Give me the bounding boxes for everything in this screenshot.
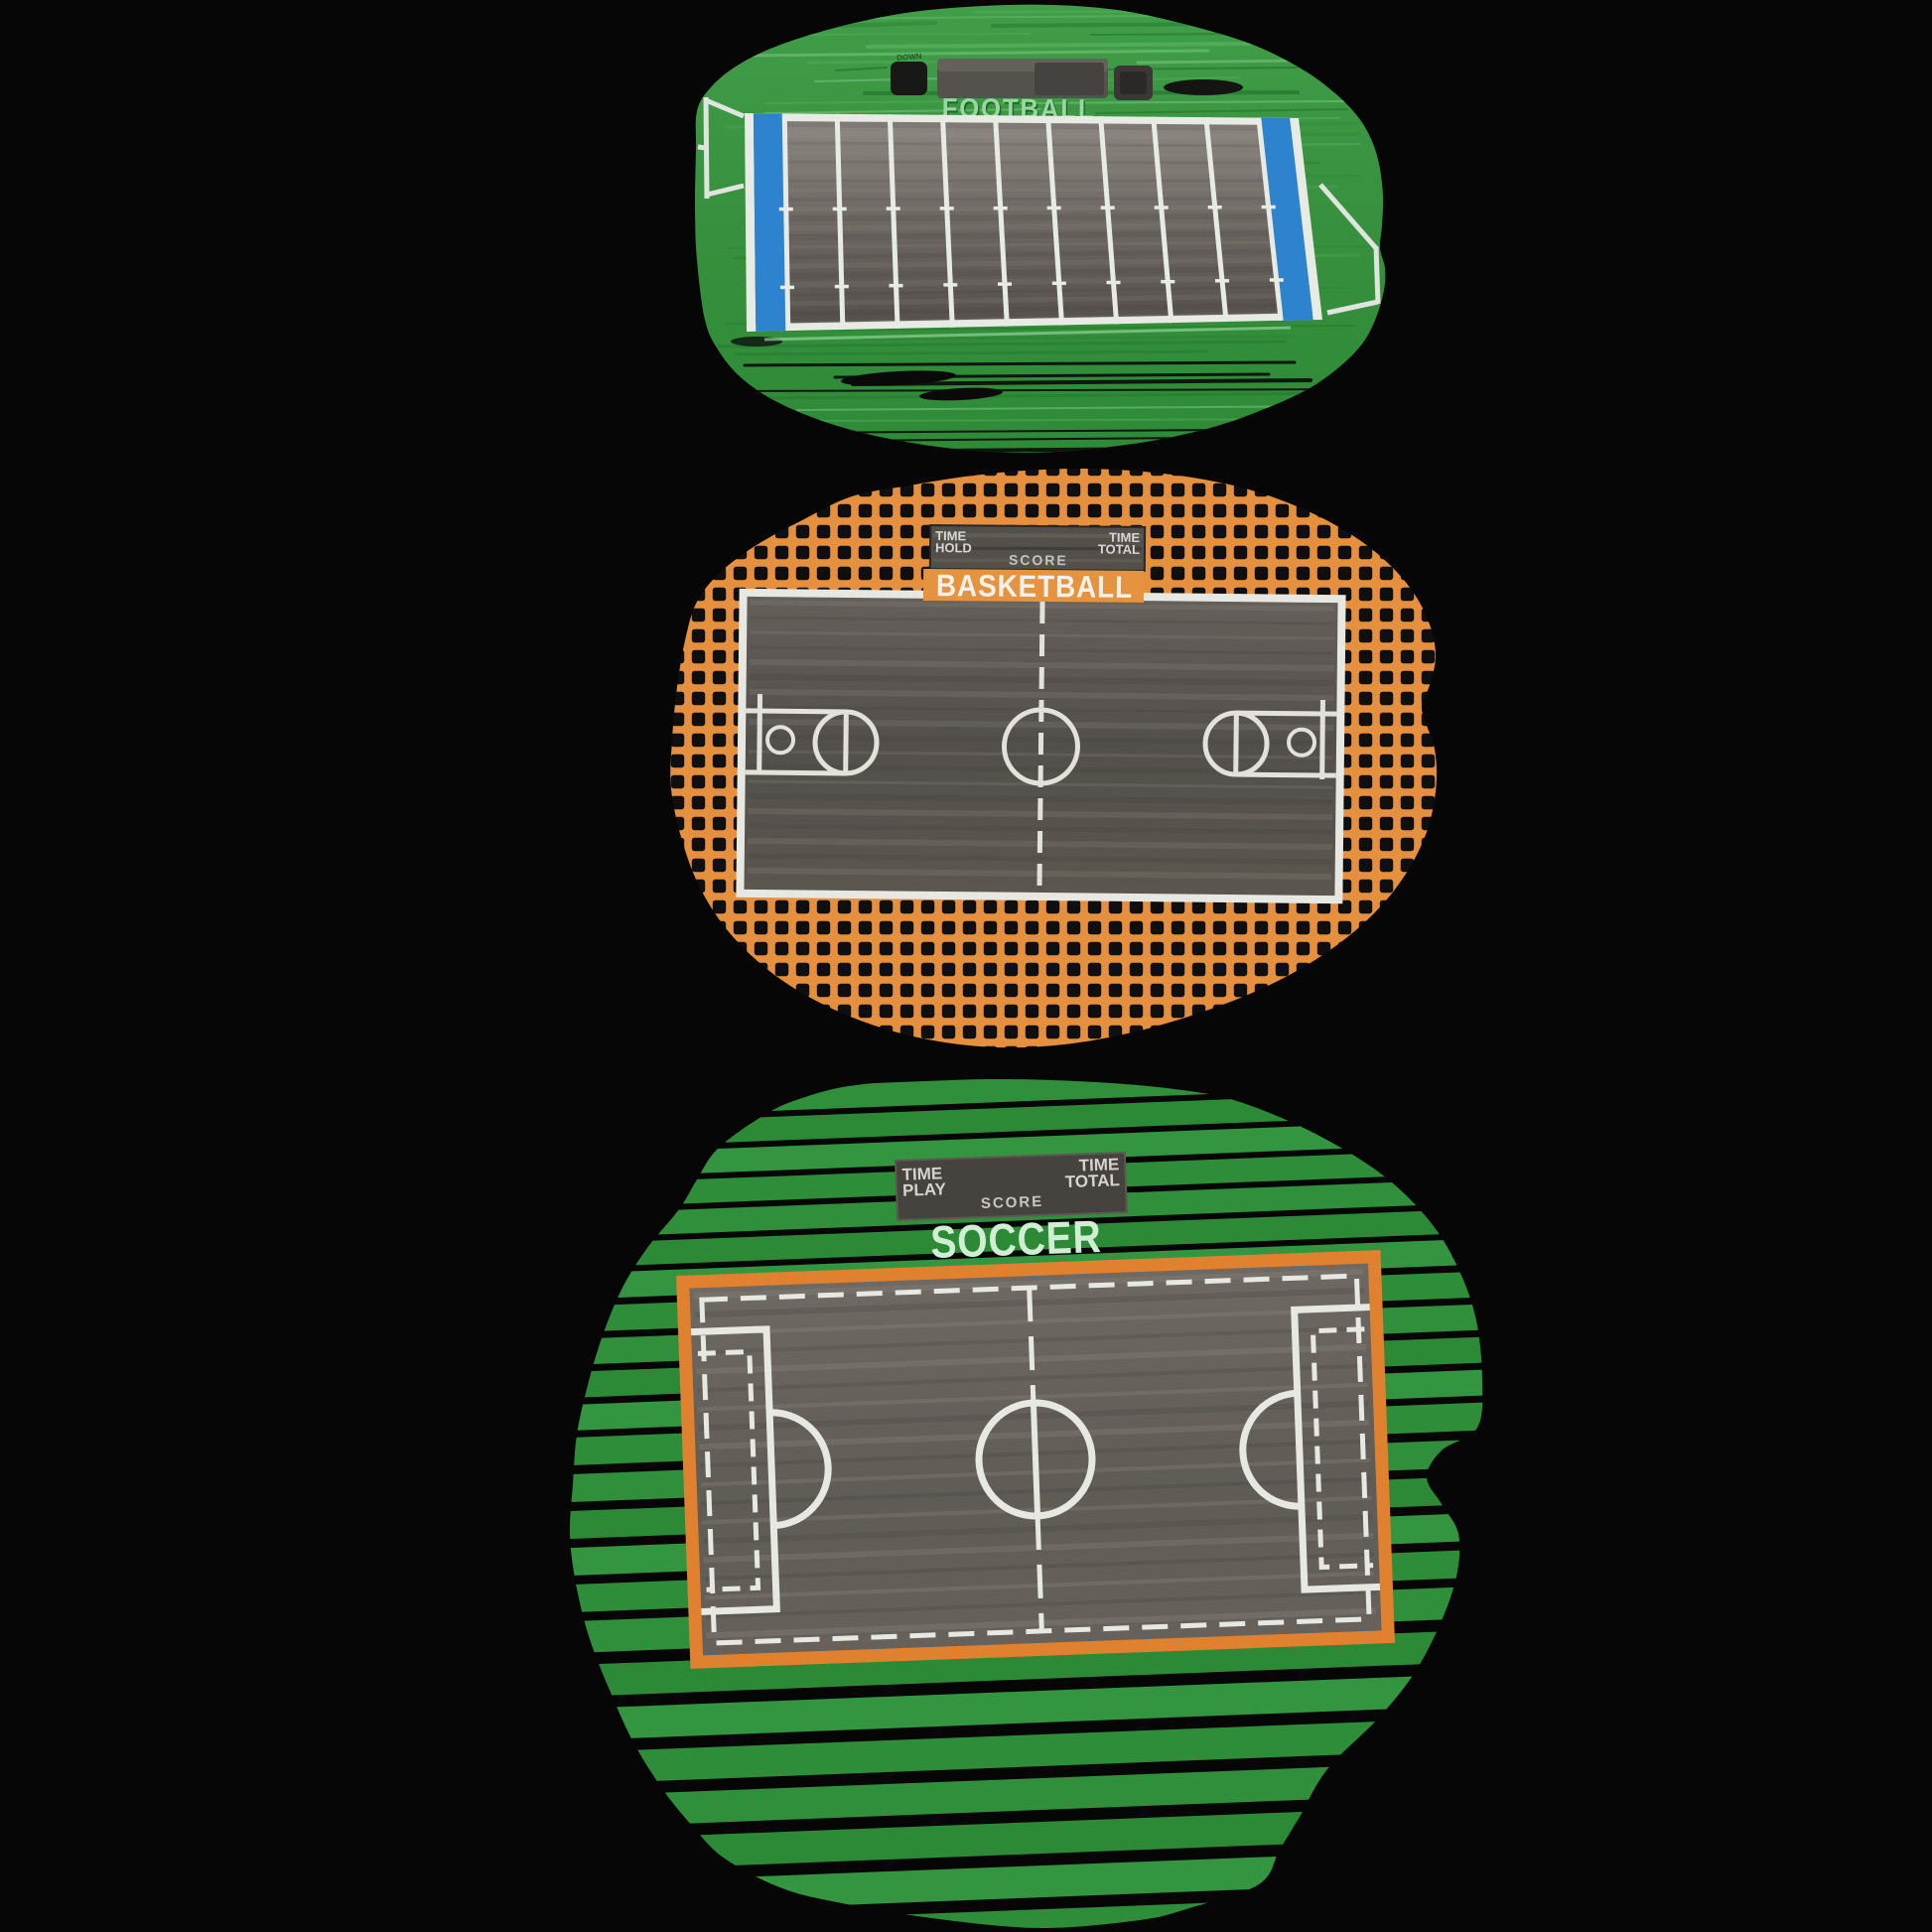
svg-text:TOTAL: TOTAL xyxy=(1098,542,1140,557)
svg-text:TOTAL: TOTAL xyxy=(1064,1171,1120,1191)
svg-text:DOWN: DOWN xyxy=(897,52,922,63)
svg-text:BASKETBALL: BASKETBALL xyxy=(936,569,1133,605)
svg-text:SOCCER: SOCCER xyxy=(929,1211,1102,1269)
svg-text:HOLD: HOLD xyxy=(935,540,972,555)
svg-text:SCORE: SCORE xyxy=(981,1193,1044,1212)
svg-text:PLAY: PLAY xyxy=(902,1179,947,1200)
svg-text:SCORE: SCORE xyxy=(1009,552,1068,569)
